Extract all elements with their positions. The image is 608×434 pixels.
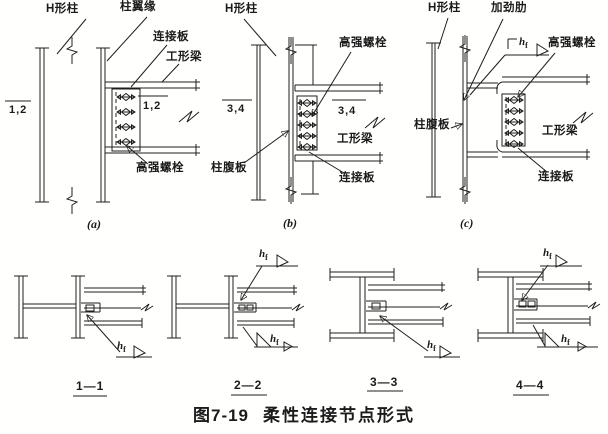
section-label-4-4: 4—4 — [516, 379, 544, 391]
label-bolts-c: 高强螺栓 — [548, 38, 596, 50]
panel-tag-b: (b) — [283, 217, 297, 229]
panel-b-connection-plate — [297, 96, 317, 151]
section-3-3-drawing — [330, 268, 460, 391]
weld-size-label-3-3: hf — [427, 340, 436, 353]
section-mark-3-4-right: 3,4 — [338, 106, 356, 117]
label-stiffener-c: 加劲肋 — [491, 3, 527, 15]
panel-a-beam — [105, 79, 200, 156]
panel-tag-a: (a) — [87, 218, 101, 230]
figure-number: 图7-19 — [193, 406, 249, 425]
label-bolts-b: 高强螺栓 — [339, 38, 387, 50]
section-1-1-drawing — [14, 276, 153, 396]
bolt-icon — [117, 124, 135, 131]
bolt-icon — [505, 119, 523, 126]
section-2-2-drawing — [167, 255, 304, 395]
label-i-beam-a: 工形梁 — [166, 52, 202, 64]
label-i-beam-b: 工形梁 — [337, 134, 373, 146]
section-label-1-1: 1—1 — [76, 380, 104, 392]
section-label-3-3: 3—3 — [370, 376, 398, 388]
bolt-icon — [298, 122, 316, 129]
bolt-icon — [298, 100, 316, 107]
panel-a-connection-plate — [112, 89, 140, 151]
label-h-column-a: H形柱 — [46, 4, 79, 16]
weld-size-label-c: hf — [519, 37, 528, 50]
weld-size-label-2-2-top: hf — [259, 249, 268, 262]
bolt-icon — [505, 130, 523, 137]
panel-a-column — [35, 37, 110, 214]
label-column-web-c: 柱腹板 — [414, 120, 450, 132]
figure-caption: 图7-19柔性连接节点形式 — [0, 401, 608, 426]
label-connection-plate-c: 连接板 — [538, 172, 574, 184]
bolt-icon — [298, 133, 316, 140]
label-i-beam-c: 工形梁 — [542, 126, 578, 138]
panel-b-column — [251, 37, 319, 204]
weld-size-label-1-1: hf — [117, 341, 126, 354]
panel-c-stiffeners — [467, 83, 498, 157]
weld-size-label-4-4-bottom: hf — [561, 334, 570, 347]
label-h-column-c: H形柱 — [428, 3, 461, 15]
weld-size-label-2-2-bottom: hf — [270, 334, 279, 347]
label-bolts-a: 高强螺栓 — [136, 163, 184, 175]
section-mark-3-4-left: 3,4 — [227, 104, 245, 115]
label-connection-plate-a: 连接板 — [153, 32, 189, 44]
panel-c-leaders — [438, 18, 555, 172]
weld-size-label-4-4-top: hf — [543, 248, 552, 261]
bolt-icon — [505, 108, 523, 115]
label-column-web-b: 柱腹板 — [211, 163, 247, 175]
figure-title: 柔性连接节点形式 — [263, 406, 415, 425]
bolt-icon — [117, 139, 135, 146]
panel-c-beam — [497, 74, 593, 160]
bolt-icon — [117, 94, 135, 101]
figure-7-19-joint-diagram: H形柱 柱翼缘 连接板 工形梁 高强螺栓 1,2 1,2 (a) H形柱 高强螺… — [0, 0, 608, 434]
label-h-column-b: H形柱 — [225, 4, 258, 16]
section-mark-1-2-right: 1,2 — [143, 101, 161, 112]
section-4-4-drawing — [478, 255, 600, 395]
section-label-2-2: 2—2 — [234, 379, 262, 391]
label-connection-plate-b: 连接板 — [339, 173, 375, 185]
label-column-flange-a: 柱翼缘 — [120, 2, 156, 14]
bolt-icon — [505, 97, 523, 104]
panel-c-connection-plate — [502, 94, 525, 148]
bolt-icon — [117, 109, 135, 116]
bolt-icon — [298, 144, 316, 151]
section-mark-1-2-left: 1,2 — [9, 105, 27, 116]
panel-tag-c: (c) — [460, 217, 473, 229]
